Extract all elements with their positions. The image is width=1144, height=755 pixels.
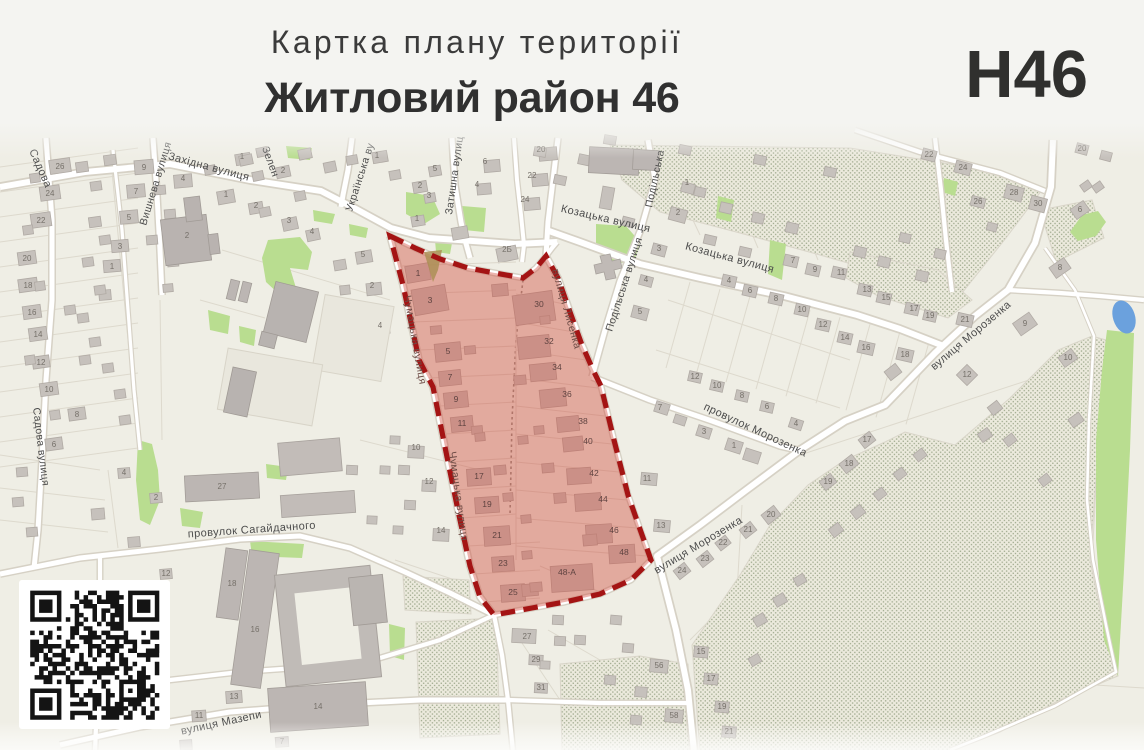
svg-text:7: 7 bbox=[658, 403, 663, 412]
svg-text:9: 9 bbox=[813, 265, 818, 274]
svg-text:9: 9 bbox=[454, 394, 459, 404]
svg-text:2Б: 2Б bbox=[502, 245, 512, 254]
svg-text:19: 19 bbox=[824, 477, 833, 486]
svg-text:16: 16 bbox=[28, 308, 37, 317]
svg-text:20: 20 bbox=[767, 510, 776, 519]
svg-text:19: 19 bbox=[718, 702, 727, 711]
svg-text:20: 20 bbox=[23, 254, 32, 263]
svg-text:21: 21 bbox=[744, 525, 753, 534]
svg-text:11: 11 bbox=[837, 268, 846, 277]
svg-text:30: 30 bbox=[1034, 199, 1043, 208]
svg-text:4: 4 bbox=[727, 276, 732, 285]
svg-text:24: 24 bbox=[521, 195, 530, 204]
svg-text:9: 9 bbox=[142, 163, 147, 172]
svg-text:17: 17 bbox=[863, 435, 872, 444]
svg-text:23: 23 bbox=[701, 554, 710, 563]
svg-text:22: 22 bbox=[528, 171, 537, 180]
svg-text:38: 38 bbox=[578, 416, 588, 426]
svg-text:4: 4 bbox=[475, 180, 480, 189]
svg-text:21: 21 bbox=[492, 530, 502, 540]
svg-text:9: 9 bbox=[1023, 319, 1028, 328]
svg-text:2: 2 bbox=[281, 166, 286, 175]
svg-text:13: 13 bbox=[657, 521, 666, 530]
svg-text:6: 6 bbox=[765, 402, 770, 411]
svg-text:26: 26 bbox=[974, 197, 983, 206]
svg-text:7: 7 bbox=[448, 372, 453, 382]
svg-text:25: 25 bbox=[508, 587, 518, 597]
svg-text:8: 8 bbox=[1058, 263, 1063, 272]
svg-text:2: 2 bbox=[418, 181, 423, 190]
svg-text:5: 5 bbox=[446, 346, 451, 356]
svg-text:56: 56 bbox=[655, 661, 664, 670]
svg-text:31: 31 bbox=[537, 683, 546, 692]
svg-text:10: 10 bbox=[798, 305, 807, 314]
svg-text:26: 26 bbox=[56, 162, 65, 171]
svg-text:4: 4 bbox=[644, 275, 649, 284]
svg-text:6: 6 bbox=[483, 157, 488, 166]
svg-text:13: 13 bbox=[230, 692, 239, 701]
svg-text:Н46: Н46 bbox=[965, 37, 1088, 112]
svg-text:10: 10 bbox=[713, 381, 722, 390]
svg-text:58: 58 bbox=[670, 711, 679, 720]
svg-text:2: 2 bbox=[154, 493, 159, 502]
svg-text:29: 29 bbox=[532, 655, 541, 664]
svg-text:2: 2 bbox=[370, 281, 375, 290]
svg-text:46: 46 bbox=[609, 525, 619, 535]
svg-text:Житловий район 46: Житловий район 46 bbox=[263, 74, 679, 122]
svg-text:12: 12 bbox=[37, 358, 46, 367]
svg-text:22: 22 bbox=[37, 216, 46, 225]
svg-text:7: 7 bbox=[134, 187, 139, 196]
svg-text:5: 5 bbox=[361, 250, 366, 259]
svg-text:1: 1 bbox=[224, 190, 229, 199]
svg-text:4: 4 bbox=[794, 419, 799, 428]
svg-text:19: 19 bbox=[926, 311, 935, 320]
svg-text:3: 3 bbox=[428, 295, 433, 305]
svg-text:18: 18 bbox=[228, 579, 237, 588]
svg-text:40: 40 bbox=[583, 436, 593, 446]
svg-text:32: 32 bbox=[544, 336, 554, 346]
svg-text:12: 12 bbox=[691, 372, 700, 381]
svg-text:2: 2 bbox=[254, 201, 259, 210]
svg-text:15: 15 bbox=[697, 647, 706, 656]
svg-text:1: 1 bbox=[732, 441, 737, 450]
svg-text:18: 18 bbox=[901, 350, 910, 359]
svg-text:12: 12 bbox=[425, 477, 434, 486]
svg-text:5: 5 bbox=[127, 213, 132, 222]
svg-text:3: 3 bbox=[427, 191, 432, 200]
svg-text:8: 8 bbox=[75, 410, 80, 419]
svg-text:36: 36 bbox=[562, 389, 572, 399]
svg-text:22: 22 bbox=[719, 538, 728, 547]
svg-text:2: 2 bbox=[676, 208, 681, 217]
svg-text:44: 44 bbox=[598, 494, 608, 504]
svg-text:18: 18 bbox=[24, 281, 33, 290]
svg-text:1: 1 bbox=[110, 262, 115, 271]
svg-text:5: 5 bbox=[638, 307, 643, 316]
svg-text:12: 12 bbox=[819, 320, 828, 329]
svg-text:24: 24 bbox=[959, 163, 968, 172]
svg-text:15: 15 bbox=[882, 293, 891, 302]
svg-text:2: 2 bbox=[185, 231, 190, 240]
svg-text:30: 30 bbox=[534, 299, 544, 309]
svg-text:7: 7 bbox=[791, 256, 796, 265]
svg-text:21: 21 bbox=[961, 315, 970, 324]
svg-text:3: 3 bbox=[118, 242, 123, 251]
svg-text:6: 6 bbox=[52, 440, 57, 449]
svg-text:16: 16 bbox=[251, 625, 260, 634]
svg-text:48-А: 48-А bbox=[558, 567, 576, 577]
svg-text:42: 42 bbox=[589, 468, 599, 478]
svg-text:48: 48 bbox=[619, 547, 629, 557]
svg-text:14: 14 bbox=[841, 333, 850, 342]
svg-text:4: 4 bbox=[181, 174, 186, 183]
svg-text:27: 27 bbox=[523, 632, 532, 641]
svg-text:14: 14 bbox=[34, 330, 43, 339]
svg-text:6: 6 bbox=[748, 286, 753, 295]
svg-text:12: 12 bbox=[963, 370, 972, 379]
svg-text:Картка плану території: Картка плану території bbox=[271, 24, 683, 60]
svg-text:8: 8 bbox=[774, 294, 779, 303]
svg-text:14: 14 bbox=[437, 526, 446, 535]
svg-text:3: 3 bbox=[657, 244, 662, 253]
svg-text:4: 4 bbox=[122, 468, 127, 477]
svg-text:34: 34 bbox=[552, 362, 562, 372]
svg-text:11: 11 bbox=[458, 418, 467, 428]
svg-text:4: 4 bbox=[310, 227, 315, 236]
svg-text:28: 28 bbox=[1010, 188, 1019, 197]
svg-text:27: 27 bbox=[218, 482, 227, 491]
svg-text:12: 12 bbox=[162, 569, 171, 578]
svg-text:10: 10 bbox=[1064, 353, 1073, 362]
svg-text:3: 3 bbox=[702, 427, 707, 436]
svg-text:1: 1 bbox=[415, 214, 420, 223]
svg-text:11: 11 bbox=[195, 711, 204, 720]
svg-text:24: 24 bbox=[46, 189, 55, 198]
svg-text:17: 17 bbox=[910, 304, 919, 313]
svg-text:16: 16 bbox=[862, 343, 871, 352]
svg-text:8: 8 bbox=[740, 391, 745, 400]
svg-text:10: 10 bbox=[412, 443, 421, 452]
svg-text:24: 24 bbox=[678, 566, 687, 575]
svg-text:11: 11 bbox=[643, 474, 652, 483]
svg-text:5: 5 bbox=[433, 164, 438, 173]
svg-text:1: 1 bbox=[685, 178, 690, 187]
svg-text:17: 17 bbox=[474, 471, 484, 481]
svg-text:1: 1 bbox=[416, 268, 421, 278]
svg-text:6: 6 bbox=[1078, 205, 1083, 214]
svg-text:19: 19 bbox=[482, 499, 492, 509]
svg-text:10: 10 bbox=[45, 385, 54, 394]
svg-text:13: 13 bbox=[863, 285, 872, 294]
svg-text:18: 18 bbox=[845, 459, 854, 468]
svg-text:14: 14 bbox=[314, 702, 323, 711]
svg-text:17: 17 bbox=[707, 674, 716, 683]
svg-text:4: 4 bbox=[378, 321, 383, 330]
svg-text:23: 23 bbox=[498, 558, 508, 568]
svg-text:3: 3 bbox=[287, 216, 292, 225]
